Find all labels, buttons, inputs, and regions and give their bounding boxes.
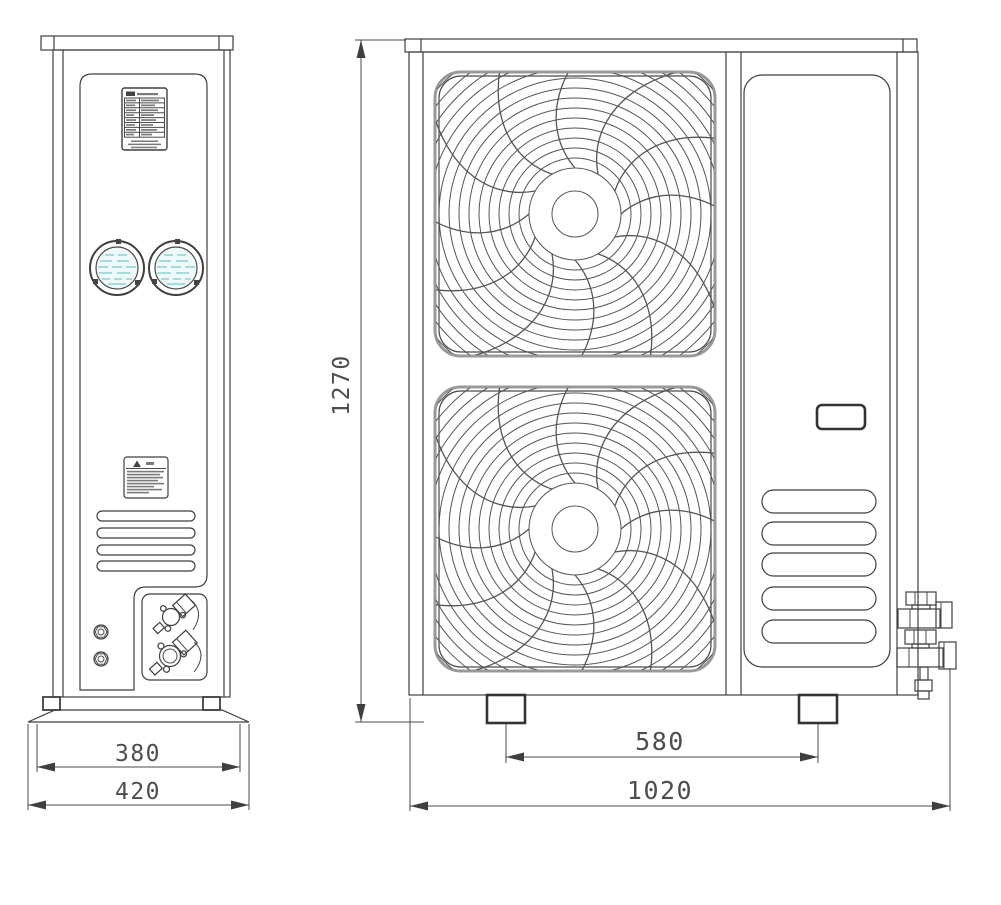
fan-grille-bottom	[379, 333, 771, 725]
dimension-380: 380	[37, 724, 240, 772]
side-top-cap	[41, 36, 233, 50]
condensing-unit-drawing: 380 420	[0, 0, 1001, 905]
panel-vent-slots	[762, 490, 876, 643]
dimension-580: 580	[506, 724, 818, 763]
nameplate-label	[122, 88, 167, 150]
side-foot-left	[43, 697, 60, 710]
side-vent-slots	[97, 511, 195, 571]
dim-label-420: 420	[115, 779, 161, 805]
service-valve-upper	[898, 592, 952, 628]
side-view: 380 420	[28, 36, 249, 810]
dim-label-1270: 1270	[329, 354, 355, 415]
technical-drawing-canvas: 380 420	[0, 0, 1001, 905]
side-foot-right	[203, 697, 220, 710]
service-valve-lower	[897, 630, 956, 699]
service-panel	[744, 75, 890, 667]
side-valve-panel	[141, 589, 207, 680]
panel-handle	[817, 405, 865, 429]
dimension-1270: 1270	[329, 40, 424, 722]
sight-glass-left	[90, 239, 144, 295]
fan-grille-top	[379, 18, 771, 410]
front-view: 1270 580 1020	[329, 18, 956, 811]
front-top-cap	[405, 39, 917, 52]
dim-label-1020: 1020	[627, 776, 693, 805]
front-foot-left	[487, 695, 525, 723]
front-foot-right	[799, 695, 837, 723]
dim-label-380: 380	[115, 741, 161, 767]
sight-glass-right	[149, 239, 203, 295]
front-cabinet-body	[409, 52, 918, 695]
hex-plug-top	[94, 625, 108, 639]
warning-label	[124, 457, 168, 498]
side-base-plate	[28, 710, 249, 722]
hex-plug-bottom	[94, 652, 108, 666]
dim-label-580: 580	[635, 727, 685, 756]
